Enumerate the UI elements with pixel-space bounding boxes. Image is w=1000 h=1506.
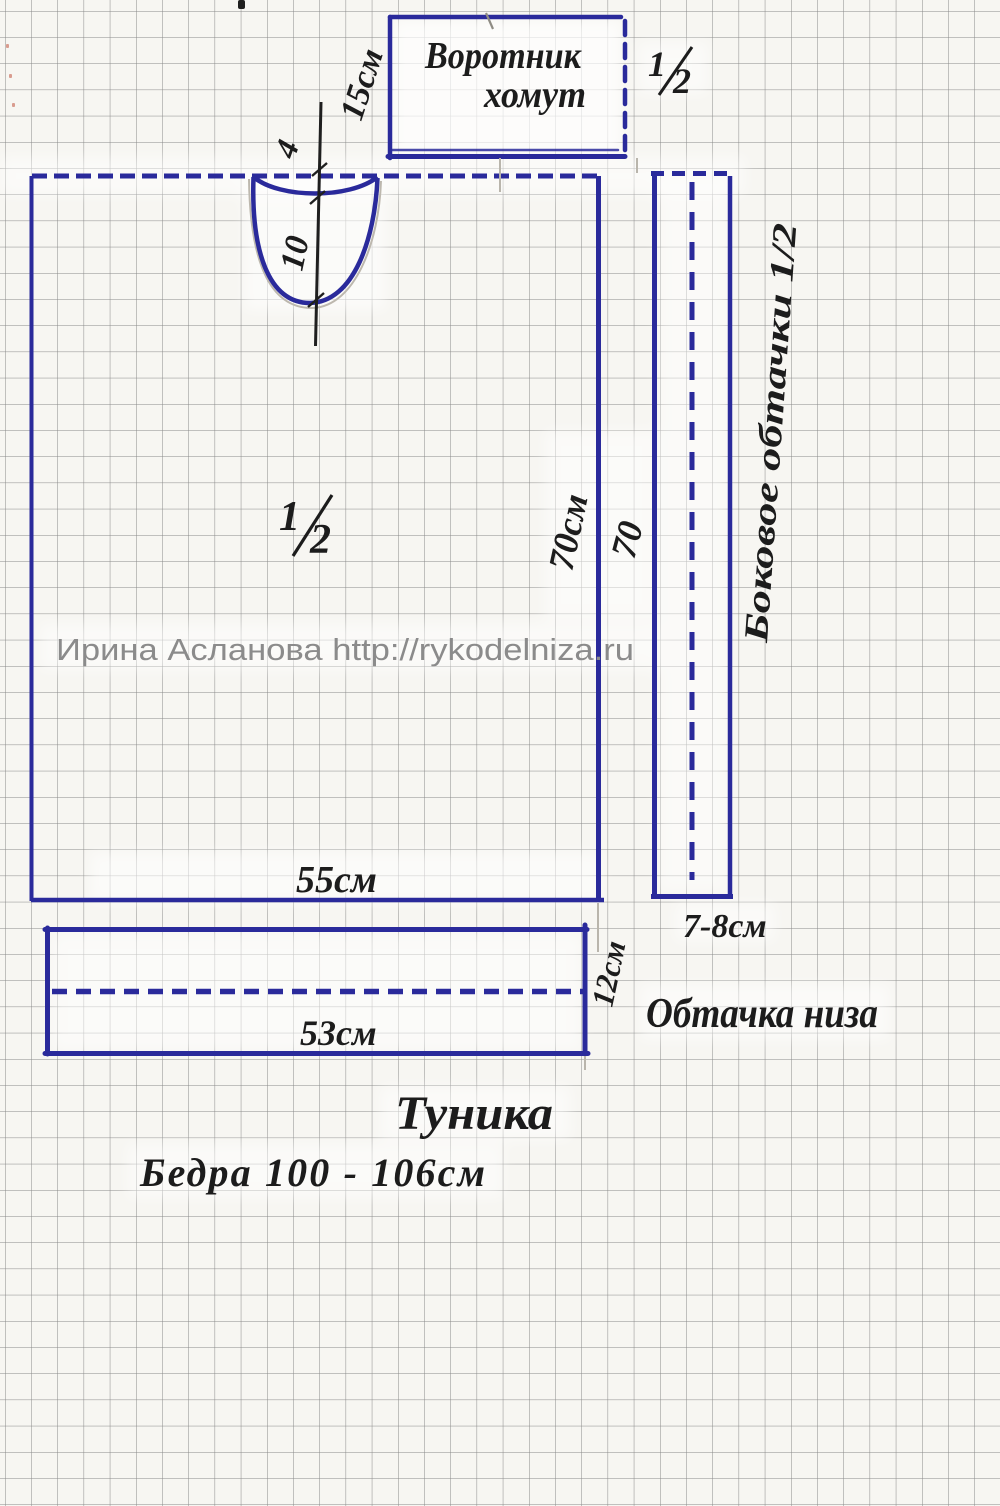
svg-text:2: 2 [672, 61, 691, 101]
svg-text:Бедра 100 - 106см: Бедра 100 - 106см [139, 1150, 485, 1195]
svg-text:55см: 55см [296, 859, 377, 901]
svg-text:7-8см: 7-8см [683, 908, 767, 945]
svg-text:Воротник: Воротник [424, 35, 582, 77]
svg-text:53см: 53см [300, 1013, 377, 1053]
svg-text:2: 2 [309, 517, 331, 563]
svg-text:Туника: Туника [395, 1087, 553, 1140]
svg-text:хомут: хомут [483, 74, 586, 116]
svg-text:Обтачка низа: Обтачка низа [646, 991, 878, 1037]
svg-text:1: 1 [279, 494, 300, 540]
svg-text:1: 1 [648, 44, 666, 84]
svg-text:Ирина Асланова http://rykodel: Ирина Асланова http://rykodelniza.ru [56, 632, 634, 667]
